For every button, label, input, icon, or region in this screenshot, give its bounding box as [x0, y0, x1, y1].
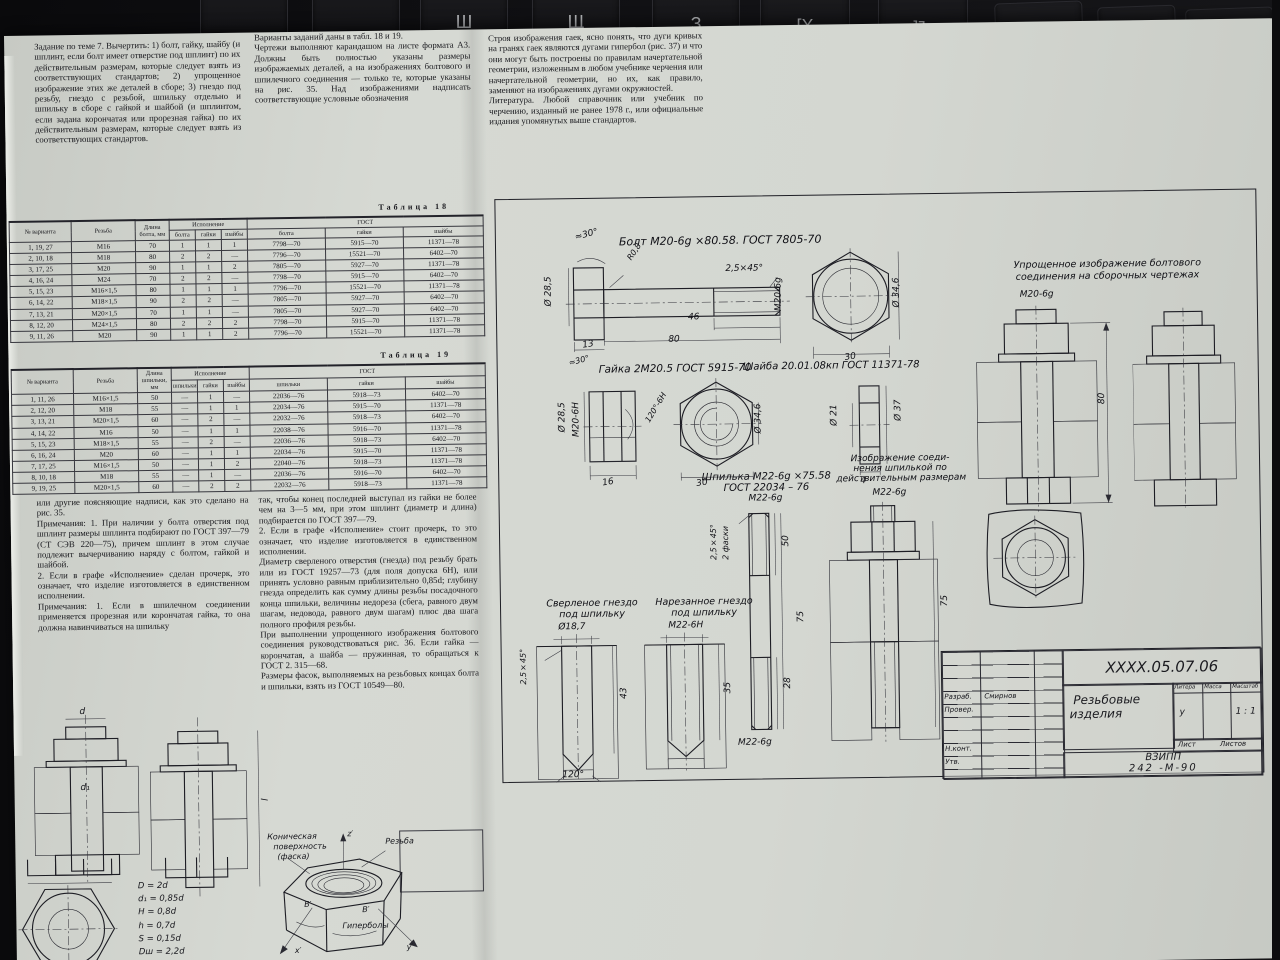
- table-cell: 60: [138, 415, 172, 427]
- table-cell: 2: [170, 295, 196, 306]
- masshtab-value: 1 : 1: [1235, 707, 1255, 717]
- tapped-depth-label: 35: [723, 682, 733, 694]
- table-cell: М20: [73, 329, 137, 341]
- col-header: гайки: [327, 377, 405, 390]
- simplified-len-label: 80: [1097, 393, 1107, 405]
- table-cell: 90: [136, 296, 170, 308]
- stud-thread-bottom-label: М22-6g: [738, 737, 772, 747]
- table-cell: 70: [136, 307, 170, 319]
- simplified-joint-drawing-1: [974, 305, 1119, 515]
- table-cell: 1: [196, 306, 222, 317]
- table-cell: —: [173, 470, 199, 481]
- table-cell: 1: [170, 284, 196, 295]
- nut-title: Гайка 2М20.5 ГОСТ 5915-70: [599, 362, 752, 376]
- table-cell: 2, 10, 18: [10, 253, 72, 265]
- axis-z-label: z′: [347, 829, 353, 838]
- table-cell: 6, 14, 22: [10, 297, 72, 309]
- dim-label: d: [79, 707, 85, 717]
- table-cell: 1: [198, 458, 224, 469]
- bolt-head-h-label: 13: [582, 339, 595, 351]
- formula-line: h = 0,7d: [138, 918, 228, 932]
- table-cell: 1: [197, 328, 223, 339]
- table-cell: 4, 16, 24: [10, 275, 72, 287]
- stud-ltop-label: 50: [781, 535, 791, 547]
- nut-side-view-drawing: [581, 379, 644, 485]
- table-cell: 2: [199, 480, 225, 491]
- utv-label: Утв.: [945, 758, 960, 766]
- designation-cell: ХХХХ.05.07.06: [1062, 647, 1262, 686]
- tapped-socket-drawing: [642, 632, 728, 773]
- nut-thread-label: М20-6Н: [571, 402, 581, 437]
- organization-cell: ВЗИПП 242 -М-90: [1063, 749, 1263, 778]
- col-header: Длина шпильки, мм: [137, 368, 171, 393]
- table-cell: М18×1,5: [74, 437, 138, 449]
- col-header: Длина болта, мм: [135, 220, 169, 241]
- stud-drawing: [731, 505, 788, 736]
- massa-label: Масса: [1204, 684, 1222, 690]
- table-cell: —: [172, 458, 198, 469]
- washer-inner-dia-label: Ø 21: [829, 404, 839, 426]
- column-task-text: Задание по теме 7. Вычертить: 1) болт, г…: [34, 39, 241, 146]
- table-cell: 1: [198, 403, 224, 414]
- name-cell: Резьбовые изделия: [1062, 683, 1175, 751]
- table-cell: М20×1,5: [74, 415, 138, 427]
- table-cell: М18: [75, 470, 139, 482]
- bolt-head-dia-label: Ø 28,5: [543, 276, 553, 306]
- table-cell: —: [224, 414, 250, 425]
- table-cell: 8, 12, 20: [10, 319, 72, 331]
- table-cell: 2, 12, 20: [12, 405, 74, 417]
- title-block-left-grid: [942, 650, 1066, 780]
- table-cell: 60: [138, 448, 172, 460]
- table-cell: М24×1,5: [72, 318, 136, 330]
- razrab-label: Разраб.: [944, 693, 972, 701]
- table-cell: 1: [224, 425, 250, 436]
- table-cell: М20×1,5: [72, 307, 136, 319]
- point-b-label: B′: [304, 900, 311, 909]
- table-cell: М16: [71, 241, 135, 253]
- hyperbolas-label: Гиперболы: [342, 921, 388, 931]
- table-cell: —: [222, 250, 248, 261]
- stud-joint-title3: действительным размерам: [826, 472, 976, 484]
- litera-value: у: [1179, 708, 1184, 718]
- table-cell: 2: [225, 480, 251, 491]
- tapped-thread-label: М22-6Н: [668, 620, 703, 630]
- table-cell: 1: [170, 262, 196, 273]
- table-cell: 55: [139, 470, 173, 482]
- table-cell: —: [172, 436, 198, 447]
- nut-proportions-formulas: D = 2dd₁ = 0,85dH = 0,8dh = 0,7dS = 0,15…: [138, 879, 229, 959]
- stud-joint-len-label: 75: [940, 595, 950, 607]
- table-cell: М16: [74, 426, 138, 438]
- table-cell: 70: [136, 274, 170, 286]
- tapped-socket-title2: под шпильку: [636, 606, 772, 619]
- table-cell: М24: [72, 274, 136, 286]
- table-cell: 2: [196, 295, 222, 306]
- table-cell: 2: [196, 317, 222, 328]
- table-cell: 1: [221, 239, 247, 250]
- prover-label: Провер.: [944, 706, 973, 714]
- table-cell: 2: [222, 261, 248, 272]
- nut-circum-dia-label: Ø 34,6: [753, 403, 763, 433]
- table-cell: 8, 10, 18: [13, 471, 75, 483]
- column-notes-mid: так, чтобы конец последней выступал из г…: [258, 491, 479, 691]
- bolt-chamfer-label: 2,5×45°: [725, 263, 763, 274]
- table-cell: 50: [137, 393, 171, 405]
- point-b2-label: В′: [362, 905, 369, 914]
- formula-line: S = 0,15d: [139, 932, 229, 946]
- table-18: № варианта Резьба Длина болта, мм Исполн…: [9, 214, 486, 342]
- table-cell: 7, 13, 21: [10, 308, 72, 320]
- table-cell: 2: [222, 317, 248, 328]
- table-cell: 1: [199, 469, 225, 480]
- cone-surface-label: поверхность: [273, 842, 327, 852]
- col-header: шпильки: [171, 380, 197, 393]
- drilled-chamfer-label: 2,5×45°: [519, 649, 529, 685]
- table-cell: 7796—70: [249, 327, 327, 339]
- stud-chamfer-label: 2,5×45°: [709, 524, 719, 560]
- table-cell: 2: [170, 273, 196, 284]
- table-cell: 90: [137, 329, 171, 341]
- bolt-thread-label: М20-6g: [773, 277, 783, 311]
- table-cell: 3, 13, 21: [12, 416, 74, 428]
- table-cell: 2: [198, 436, 224, 447]
- listov-label: Листов: [1220, 740, 1246, 748]
- formula-line: H = 0,8d: [138, 905, 228, 919]
- figure-nut-3d: Коническая поверхность (фаска) z′ Резьба…: [265, 828, 437, 960]
- axis-x-label: x′: [295, 946, 302, 955]
- dim-label: d₁: [80, 783, 89, 793]
- table-cell: 1: [196, 262, 222, 273]
- litera-label: Литера: [1174, 684, 1195, 690]
- razrab-name: Смирнов: [984, 692, 1016, 700]
- table-cell: 1: [224, 447, 250, 458]
- column-notes-left: или другие поясняющие надписи, как это с…: [36, 495, 250, 633]
- table-cell: М16×1,5: [74, 459, 138, 471]
- table-cell: 1: [222, 284, 248, 295]
- table-cell: 60: [139, 481, 173, 493]
- col-header: шайбы: [221, 229, 247, 239]
- table-cell: 55: [138, 437, 172, 449]
- table-cell: —: [173, 481, 199, 492]
- table-cell: 1, 11, 26: [12, 394, 74, 406]
- table-cell: 5, 15, 23: [12, 438, 74, 450]
- col-header: Резьба: [71, 220, 135, 242]
- table-cell: 9, 11, 26: [11, 330, 73, 342]
- col-header: Резьба: [73, 368, 137, 394]
- table-19: № варианта Резьба Длина шпильки, мм Испо…: [11, 362, 488, 494]
- nut-height-label: 16: [602, 477, 615, 489]
- bolt-thread-len-label: 46: [688, 312, 700, 322]
- table-cell: 55: [138, 404, 172, 416]
- formula-line: d₁ = 0,85d: [138, 892, 228, 906]
- table-cell: М20: [72, 263, 136, 275]
- table-cell: 15521—70: [327, 326, 405, 338]
- washer-outer-dia-label: Ø 37: [893, 399, 903, 421]
- table-cell: —: [172, 403, 198, 414]
- drawing-name-line1: Резьбовые: [1073, 692, 1173, 707]
- table-cell: М18: [74, 404, 138, 416]
- table-cell: М20×1,5: [75, 481, 139, 493]
- col-header: № варианта: [9, 221, 71, 243]
- table-cell: 70: [135, 240, 169, 252]
- thread-label: Резьба: [385, 836, 414, 845]
- bolt-circum-dia-label: Ø 34,6: [891, 277, 901, 307]
- stud-joint-drawing: [827, 501, 942, 745]
- table-cell: 7, 17, 25: [12, 460, 74, 472]
- photo-background: Ш Щ З [Х ]Ъ Delete End Page Down Задание…: [0, 0, 1280, 960]
- drawing-sheet: Болт М20-6g ×80.58. ГОСТ 7805-70: [478, 180, 1272, 791]
- col-header: болта: [169, 230, 195, 240]
- table-cell: 6, 16, 24: [12, 449, 74, 461]
- drawing-name-line2: изделия: [1069, 706, 1173, 721]
- table-cell: 50: [138, 426, 172, 438]
- stud-joint-thread-label: М22-6g: [872, 487, 906, 497]
- table-cell: —: [224, 436, 250, 447]
- table-cell: 2: [196, 251, 222, 262]
- table-cell: М20: [74, 448, 138, 460]
- table-cell: 2: [224, 458, 250, 469]
- table-cell: 80: [136, 252, 170, 264]
- formula-line: D = 2d: [138, 879, 228, 893]
- table-cell: —: [172, 425, 198, 436]
- table-cell: —: [172, 447, 198, 458]
- table-cell: 2: [170, 251, 196, 262]
- column-variants-text: Варианты заданий даны в табл. 18 и 19. Ч…: [254, 29, 471, 105]
- table-cell: 1: [171, 328, 197, 339]
- dim-label: l: [261, 798, 271, 801]
- table-cell: 5, 15, 23: [10, 286, 72, 298]
- drilled-socket-drawing: [532, 633, 622, 784]
- masshtab-label: Масштаб: [1232, 684, 1258, 690]
- list-label: Лист: [1178, 740, 1196, 748]
- table-cell: —: [223, 391, 249, 402]
- table-cell: 90: [136, 263, 170, 275]
- nut-face-view-drawing: [671, 375, 764, 482]
- title-block: Разраб. Смирнов Провер. Н.конт. Утв. ХХХ…: [941, 647, 1263, 779]
- table-cell: 1: [198, 447, 224, 458]
- table-cell: —: [171, 392, 197, 403]
- nut-dia-label: Ø 28,5: [557, 402, 567, 432]
- table-cell: М16×1,5: [72, 285, 136, 297]
- table-cell: 2: [198, 414, 224, 425]
- col-header: Исполнение: [171, 367, 249, 381]
- col-header: № варианта: [11, 369, 73, 395]
- table-cell: 1: [197, 392, 223, 403]
- table18-caption: Таблица 18: [378, 202, 449, 212]
- col-header: гайки: [197, 380, 223, 393]
- axis-y-label: y′: [407, 942, 414, 951]
- table-cell: 4, 14, 22: [12, 427, 74, 439]
- table-cell: 2: [196, 273, 222, 284]
- desk-edge: [1272, 0, 1280, 960]
- table-cell: 22032—76: [251, 479, 329, 491]
- litera-grid: Литера Масса Масштаб у 1 : 1: [1172, 681, 1263, 740]
- table-cell: —: [222, 273, 248, 284]
- organization-line2: 242 -М-90: [1064, 762, 1262, 776]
- table-cell: —: [222, 295, 248, 306]
- table-cell: 1: [196, 284, 222, 295]
- table-cell: М18: [72, 252, 136, 264]
- table-cell: 50: [138, 459, 172, 471]
- col-header: шпильки: [249, 378, 327, 391]
- drawing-designation: ХХХХ.05.07.06: [1105, 657, 1218, 677]
- table-cell: 80: [136, 318, 170, 330]
- drilled-angle-label: 120°: [562, 770, 584, 780]
- table-cell: —: [225, 469, 251, 480]
- column-hyperbolas-text: Строя изображения гаек, ясно понять, что…: [488, 30, 703, 126]
- stud-lfull-label: 75: [796, 611, 806, 623]
- table-cell: 2: [223, 328, 249, 339]
- table-cell: 1, 19, 27: [9, 242, 71, 254]
- table-cell: —: [222, 306, 248, 317]
- table19-caption: Таблица 19: [380, 350, 451, 360]
- simplified-thread-label: М20-6g: [1020, 289, 1054, 299]
- table-cell: 1: [224, 403, 250, 414]
- table-cell: М16×1,5: [74, 393, 138, 405]
- stud-chamfer2-label: 2 фаски: [721, 526, 730, 560]
- plate-top-view-drawing: [981, 503, 1090, 612]
- col-header: гайки: [195, 230, 221, 240]
- textbook-page: Задание по теме 7. Вычертить: 1) болт, г…: [4, 18, 1280, 960]
- table-cell: 5918—73: [329, 478, 407, 490]
- table-cell: 1: [169, 240, 195, 251]
- table-cell: 1: [170, 306, 196, 317]
- stud-thread-top-label: М22-6g: [748, 493, 782, 503]
- table-cell: 9, 19, 25: [13, 482, 75, 494]
- stud-lbottom-label: 28: [783, 677, 793, 689]
- drilled-depth-label: 43: [619, 687, 629, 699]
- col-header: шайбы: [223, 379, 249, 392]
- bolt-end-view-drawing: [803, 245, 905, 361]
- formula-line: Dш = 2,2d: [139, 945, 229, 959]
- bolt-len-label: 80: [668, 335, 680, 345]
- table-cell: 1: [195, 240, 221, 251]
- table-cell: 80: [136, 285, 170, 297]
- simplified-joint-drawing-2: [1132, 307, 1239, 510]
- table-cell: —: [172, 414, 198, 425]
- cone-surface-label: (фаска): [277, 852, 309, 861]
- litera-hline: [1173, 692, 1261, 694]
- table-cell: 1: [198, 425, 224, 436]
- drilled-dia-label: Ø18,7: [558, 622, 585, 632]
- table-cell: М18×1,5: [72, 296, 136, 308]
- nkont-label: Н.конт.: [945, 745, 972, 753]
- table-cell: 2: [170, 317, 196, 328]
- cone-surface-label: Коническая: [267, 832, 317, 842]
- table-cell: 3, 17, 25: [10, 264, 72, 276]
